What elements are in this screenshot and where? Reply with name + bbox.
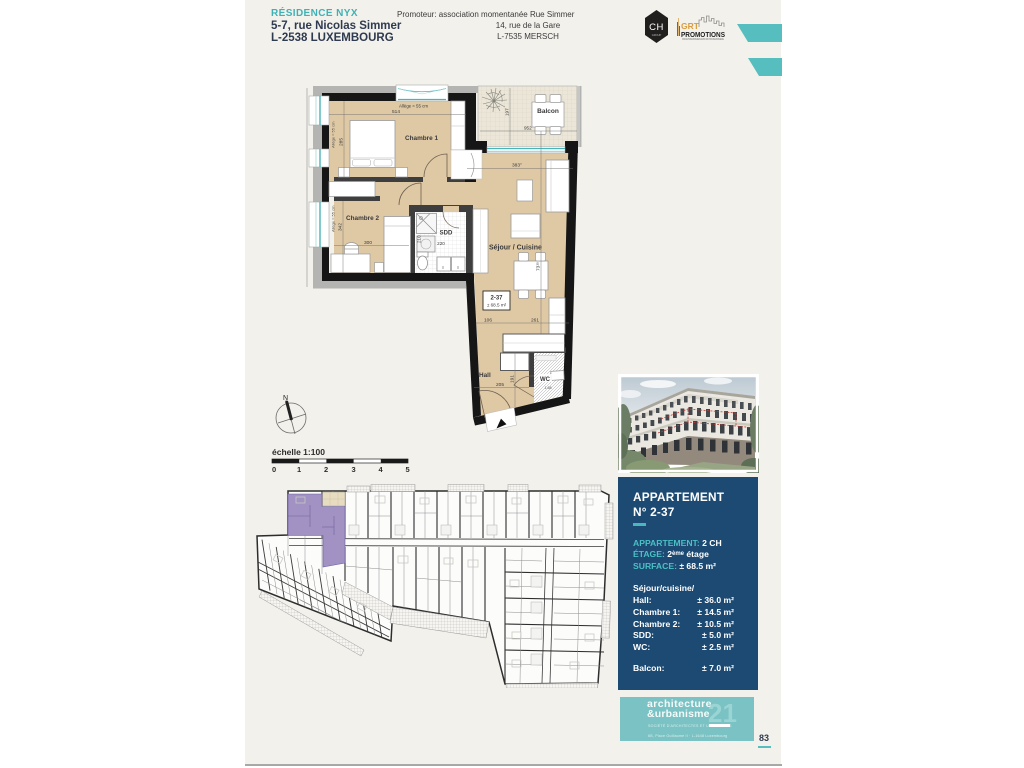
svg-text:CH: CH [649,22,664,33]
svg-text:205: 205 [496,382,504,388]
svg-text:514: 514 [392,109,400,115]
svg-text:Hall: Hall [479,372,491,379]
svg-text:4: 4 [379,465,384,474]
svg-text:2: 2 [324,465,328,474]
svg-text:1.68: 1.68 [545,386,552,390]
svg-text:Séjour / Cuisine: Séjour / Cuisine [489,245,542,252]
svg-text:197: 197 [505,108,510,116]
svg-text:952: 952 [524,126,532,131]
svg-text:WC: WC [540,377,551,383]
svg-text:342: 342 [338,223,344,231]
svg-text:300: 300 [364,240,372,246]
svg-text:Balcon: Balcon [537,108,559,115]
svg-text:Chambre 2: Chambre 2 [346,215,379,222]
svg-text:Allège ≈ 55 cm: Allège ≈ 55 cm [331,121,336,148]
svg-text:Chambre 1: Chambre 1 [405,135,438,142]
svg-text:220: 220 [437,241,445,246]
svg-text:106: 106 [484,318,492,324]
svg-text:3: 3 [352,465,356,474]
svg-text:1: 1 [297,465,301,474]
svg-text:PROMOTIONS: PROMOTIONS [681,30,725,39]
svg-text:SDD: SDD [440,231,453,237]
svg-text:± 68.5 m²: ± 68.5 m² [487,303,507,308]
svg-text:261: 261 [531,318,539,324]
svg-text:191: 191 [510,375,516,383]
svg-text:GROUP: GROUP [652,33,662,37]
svg-text:PROJETS IMMOBILIERS & PROMOTIO: PROJETS IMMOBILIERS & PROMOTION IMMOBILI… [682,39,724,41]
svg-text:Allège ≈ 55 cm: Allège ≈ 55 cm [331,205,336,232]
svg-text:285: 285 [339,138,345,146]
svg-text:383°: 383° [512,163,522,169]
svg-text:2-37: 2-37 [490,296,503,302]
svg-text:0: 0 [272,465,276,474]
svg-text:N: N [283,395,288,402]
svg-text:210: 210 [417,235,422,243]
svg-text:Allège ≈ 55 cm: Allège ≈ 55 cm [399,104,428,109]
svg-text:5: 5 [406,465,410,474]
svg-text:73¹⁵: 73¹⁵ [536,262,542,271]
